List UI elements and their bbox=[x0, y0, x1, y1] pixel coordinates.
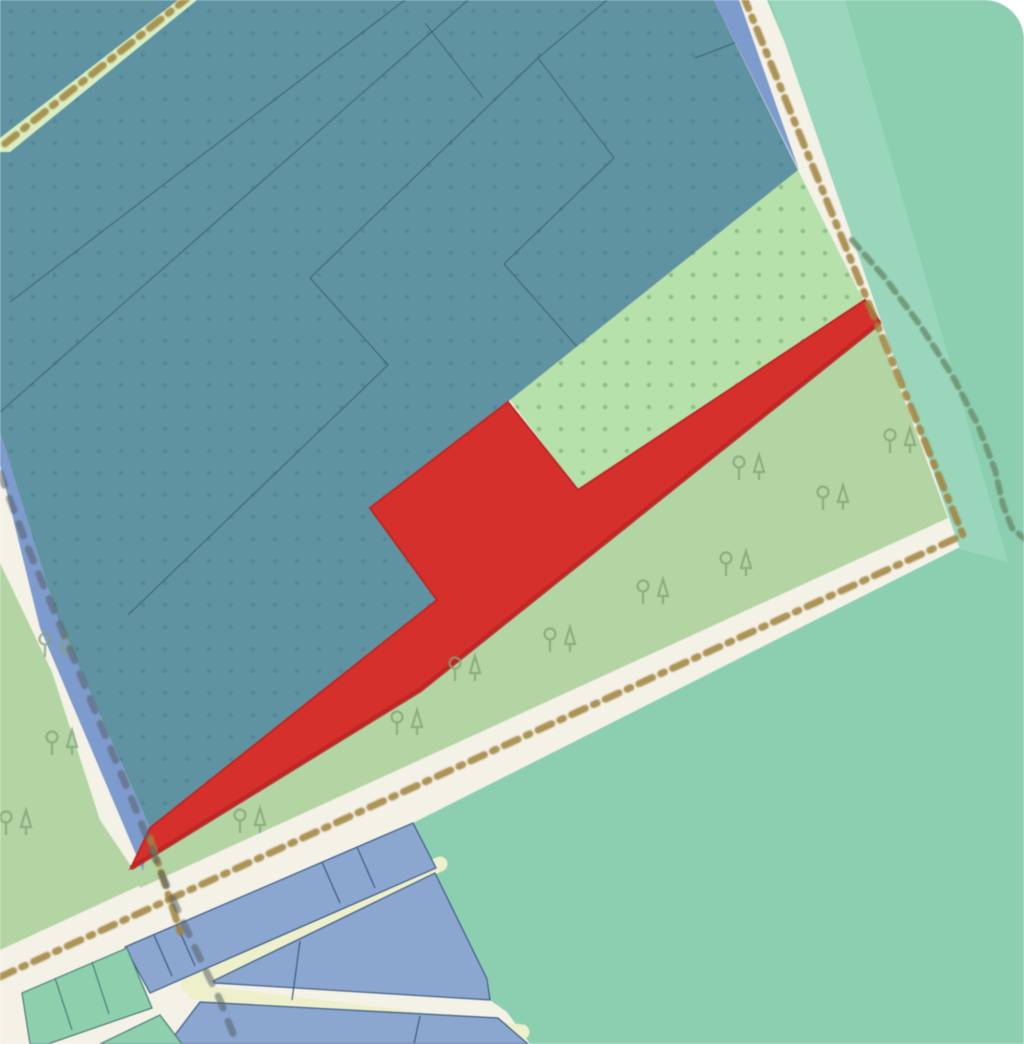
map-canvas[interactable] bbox=[0, 0, 1024, 1044]
map-render-layer bbox=[0, 0, 1024, 1044]
